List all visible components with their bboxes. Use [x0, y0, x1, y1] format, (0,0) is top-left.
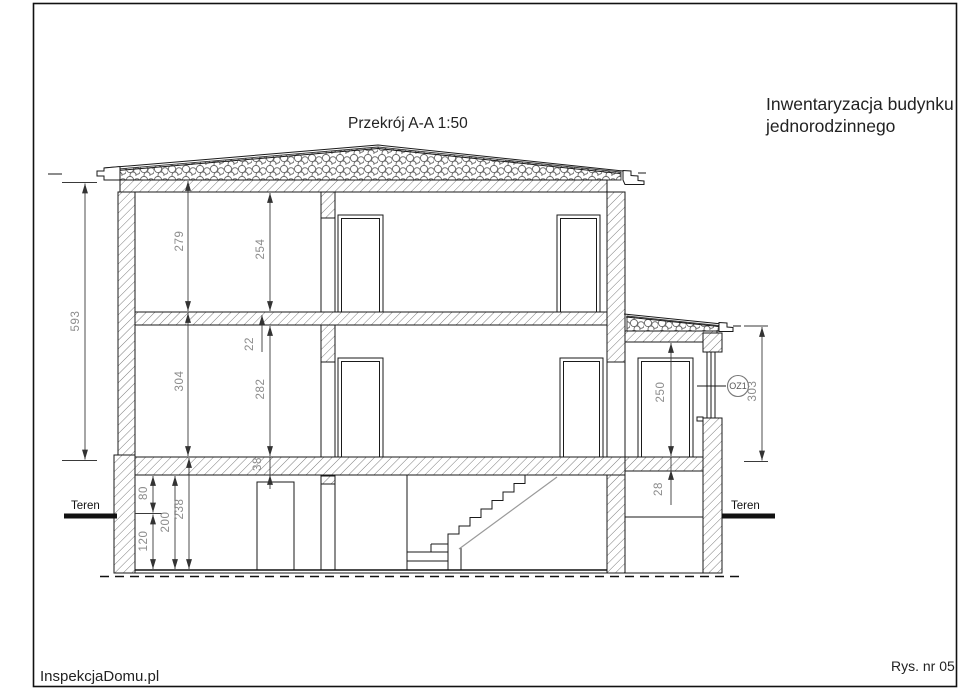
project-title-line2: jednorodzinnego: [765, 116, 895, 136]
drawing-sheet: Teren Teren OZ1 593 279 254 22 304 282: [0, 0, 971, 693]
door-second-floor-right: [557, 215, 600, 312]
second-floor-slab: [135, 312, 607, 325]
staircase: [407, 475, 557, 570]
dim-slab-to-ground: 80: [138, 486, 150, 500]
right-wall-upper: [607, 192, 625, 362]
dim-slab-to-floor: 200: [160, 512, 172, 533]
dim-slab-thickness: 22: [244, 337, 256, 351]
first-floor-slab: [135, 457, 625, 475]
dim-overall-height: 593: [70, 311, 82, 332]
door-first-floor-right: [560, 358, 603, 457]
exterior-walls: [114, 192, 625, 573]
dim-first-floor-with-slab: 304: [174, 371, 186, 392]
main-roof: [48, 145, 646, 192]
dim-second-floor-with-slab: 279: [174, 231, 186, 252]
stair-stringer: [459, 477, 557, 549]
section-drawing: Teren Teren OZ1 593 279 254 22 304 282: [0, 0, 971, 693]
left-wall-lower: [114, 455, 135, 573]
annex-wall-below-window: [703, 418, 722, 573]
column: [257, 482, 294, 570]
annex-floor-slab: [625, 457, 703, 471]
dim-first-floor-clear: 282: [255, 379, 267, 400]
dim-ground-to-floor: 120: [138, 531, 150, 552]
door-first-floor-left: [338, 358, 383, 457]
teren-label-left: Teren: [71, 500, 100, 512]
teren-bar-right: [722, 514, 775, 519]
drawing-title: Przekrój A-A 1:50: [348, 115, 468, 132]
window-tag-oz1: OZ1: [697, 376, 749, 397]
left-eave: [97, 167, 120, 181]
interior-partition: [321, 192, 335, 570]
left-wall-upper: [118, 192, 135, 455]
door-annex: [638, 358, 693, 457]
project-title-line1: Inwentaryzacja budynku: [766, 94, 954, 114]
ground-level-left: Teren: [64, 500, 117, 519]
company-name: InspekcjaDomu.pl: [40, 668, 159, 685]
dim-basement-clear: 238: [174, 499, 186, 520]
annex-wall-above-window: [703, 333, 722, 352]
dim-annex-clear: 250: [655, 382, 667, 403]
dimensions: 593 279 254 22 304 282 38 80 120 200 238: [62, 181, 768, 569]
ground-floor: [100, 475, 742, 577]
teren-label-right: Teren: [731, 500, 760, 512]
teren-bar-left: [64, 514, 117, 519]
dim-ground-slab-thickness: 38: [252, 457, 264, 471]
annex-eave: [719, 323, 733, 332]
sheet-number: Rys. nr 05: [891, 658, 955, 674]
dim-annex-slab-thickness: 28: [653, 482, 665, 496]
door-second-floor-left: [338, 215, 383, 312]
window-tag-text: OZ1: [729, 381, 747, 391]
dim-annex-height: 303: [747, 381, 759, 402]
ground-level-right: Teren: [722, 500, 775, 519]
dim-second-floor-clear: 254: [255, 239, 267, 260]
